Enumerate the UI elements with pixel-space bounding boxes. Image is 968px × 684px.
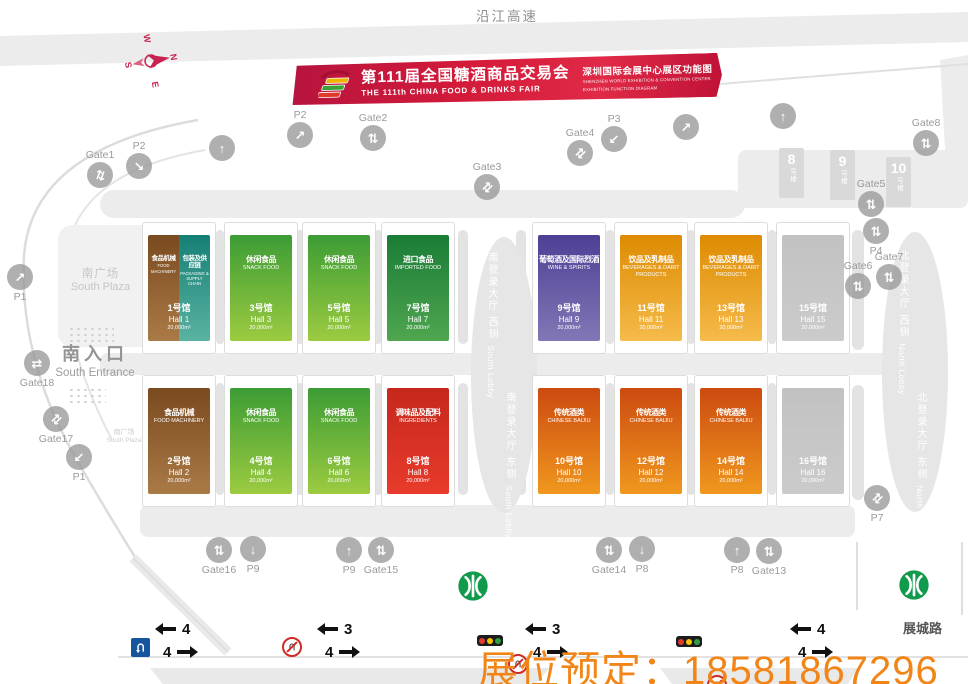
marker-label: Gate8 [912, 117, 941, 129]
left-arrow-icon [325, 627, 338, 631]
lane-count-segment: 3 4 [322, 621, 386, 660]
building-suffix: 号楼 [838, 170, 848, 185]
lane-count: 4 [817, 621, 825, 638]
lane-count: 4 [325, 644, 333, 661]
hall-number-cn: 12号馆 [620, 454, 682, 467]
hall-id: 3号馆 Hall 3 20,000m² [230, 301, 292, 331]
hall-frame: 16号馆 Hall 16 20,000m² [776, 375, 850, 507]
hall-area: 20,000m² [148, 478, 210, 484]
marker-label: P2 [294, 109, 307, 121]
south-lobby-east-en: South Lobby [504, 485, 514, 538]
hall-id: 9号馆 Hall 9 20,000m² [538, 301, 600, 331]
hall-block[interactable]: 葡萄酒及国际烈酒 WINE & SPIRITS 9号馆 Hall 9 20,00… [538, 235, 600, 341]
building-number: 10 [891, 161, 907, 175]
hall-number-cn: 6号馆 [308, 454, 370, 467]
gate-marker: P9 ↑ [336, 537, 362, 563]
direction-circle-icon: ↑ [724, 537, 750, 563]
hall-category-en: BEVERAGES & DAIRT PRODUCTS [701, 265, 761, 279]
hall-frame: 休闲食品 SNACK FOOD 4号馆 Hall 4 20,000m² [224, 375, 298, 507]
direction-circle-icon: ⇅ [368, 537, 394, 563]
lane-left: 4 [160, 621, 224, 637]
direction-circle-icon: ⇅ [206, 537, 232, 563]
lane-count: 3 [552, 621, 560, 638]
hall-category-primary: 食品机械 FOOD MACHINERY [148, 408, 210, 446]
marker-label: P7 [871, 512, 884, 524]
direction-arrow-icon: ⇅ [921, 137, 932, 150]
hall-category-primary: 调味品及配料 INGREDIENTS [387, 408, 449, 446]
uturn-allowed-sign-icon [131, 638, 150, 657]
direction-arrow-icon: ↑ [734, 544, 741, 557]
hall-category-secondary: 包装及供应链 PACKAGING & SUPPLY CHAIN [179, 255, 210, 293]
hall-id: 7号馆 Hall 7 20,000m² [387, 301, 449, 331]
direction-arrow-icon: ↓ [639, 543, 646, 556]
direction-arrow-icon: ⇅ [93, 167, 108, 183]
left-arrow-icon [163, 627, 176, 631]
hall-number-cn: 1号馆 [148, 301, 210, 314]
hall-block[interactable]: 休闲食品 SNACK FOOD 4号馆 Hall 4 20,000m² [230, 388, 292, 494]
direction-arrow-icon: ↑ [219, 142, 226, 155]
hall-id: 6号馆 Hall 6 20,000m² [308, 454, 370, 484]
hall-id: 11号馆 Hall 11 20,000m² [620, 301, 682, 331]
gate-marker: Gate6 ⇅ [845, 273, 871, 299]
hall-category: 传统酒类 CHINESE BAIJIU [538, 388, 600, 446]
gate-marker: ↗ [673, 114, 699, 140]
crosswalk [68, 387, 106, 407]
left-arrow-icon [533, 627, 546, 631]
hall-block[interactable]: 休闲食品 SNACK FOOD 6号馆 Hall 6 20,000m² [308, 388, 370, 494]
building-suffix: 号楼 [894, 177, 904, 192]
direction-arrow-icon: ⇅ [376, 544, 387, 557]
gate-marker: P9 ↓ [240, 536, 266, 562]
hall-category-primary: 传统酒类 CHINESE BAIJIU [620, 408, 682, 446]
hall-area: 20,000m² [538, 325, 600, 331]
north-lobby-east-cn: 北登录大厅 东侧 [913, 392, 926, 481]
hall-area: 20,000m² [230, 478, 292, 484]
hall-category: 休闲食品 SNACK FOOD [308, 388, 370, 446]
hall-block[interactable]: 传统酒类 CHINESE BAIJIU 12号馆 Hall 12 20,000m… [620, 388, 682, 494]
hall-category-en: SNACK FOOD [231, 265, 291, 272]
hall-block[interactable]: 饮品及乳制品 BEVERAGES & DAIRT PRODUCTS 13号馆 H… [700, 235, 762, 341]
hall-frame: 传统酒类 CHINESE BAIJIU 12号馆 Hall 12 20,000m… [614, 375, 688, 507]
hall-category-en: IMPORTED FOOD [388, 265, 448, 272]
hall-category-primary: 休闲食品 SNACK FOOD [230, 255, 292, 293]
hall-category: 传统酒类 CHINESE BAIJIU [620, 388, 682, 446]
hall-frame: 食品机械 FOOD MACHINERY 包装及供应链 PACKAGING & S… [142, 222, 216, 354]
hall-number-cn: 13号馆 [700, 301, 762, 314]
hall-category: 食品机械 FOOD MACHINERY 包装及供应链 PACKAGING & S… [148, 235, 210, 293]
south-plaza-label: 南广场 South Plaza [53, 265, 148, 293]
hall-category-cn: 休闲食品 [309, 408, 369, 417]
hall-frame: 休闲食品 SNACK FOOD 6号馆 Hall 6 20,000m² [302, 375, 376, 507]
direction-arrow-icon: ⇅ [866, 198, 877, 211]
hall-block[interactable]: 休闲食品 SNACK FOOD 5号馆 Hall 5 20,000m² [308, 235, 370, 341]
hall-frame: 进口食品 IMPORTED FOOD 7号馆 Hall 7 20,000m² [381, 222, 455, 354]
hall-number-en: Hall 11 [620, 315, 682, 324]
south-entrance-label: 南入口 South Entrance [36, 340, 154, 379]
hall-category-en: SNACK FOOD [309, 265, 369, 272]
hall-category-cn: 进口食品 [388, 255, 448, 264]
booking-hotline[interactable]: 展位预定：18581867296 [478, 638, 939, 684]
gate-marker: P1 ↗ [7, 264, 33, 290]
direction-circle-icon: ⇅ [756, 538, 782, 564]
direction-arrow-icon: ↙ [609, 133, 620, 146]
metro-station-icon [457, 570, 489, 602]
marker-label: Gate2 [359, 112, 388, 124]
hall-number-cn: 8号馆 [387, 454, 449, 467]
right-arrow-icon [339, 650, 352, 654]
gate-marker: Gate2 ⇅ [360, 125, 386, 151]
hall-number-cn: 16号馆 [782, 454, 844, 467]
gate-marker: Gate1 ⇅ [87, 162, 113, 188]
direction-circle-icon: ⇅ [858, 191, 884, 217]
hall-number-cn: 11号馆 [620, 301, 682, 314]
south-lobby-west-en: South Lobby [486, 345, 496, 398]
marker-label: Gate3 [473, 161, 502, 173]
direction-circle-icon: ⇅ [864, 485, 890, 511]
hall-number-cn: 14号馆 [700, 454, 762, 467]
hall-area: 20,000m² [620, 478, 682, 484]
hall-block[interactable]: 16号馆 Hall 16 20,000m² [782, 388, 844, 494]
hall-category: 休闲食品 SNACK FOOD [230, 235, 292, 293]
hall-category-primary: 传统酒类 CHINESE BAIJIU [538, 408, 600, 446]
hall-area: 20,000m² [230, 325, 292, 331]
hall-frame: 食品机械 FOOD MACHINERY 2号馆 Hall 2 20,000m² [142, 375, 216, 507]
hall-number-cn: 4号馆 [230, 454, 292, 467]
marker-label: Gate6 [844, 260, 873, 272]
direction-circle-icon: ⇅ [863, 218, 889, 244]
lane-left: 3 [530, 621, 594, 637]
direction-circle-icon: ↗ [287, 122, 313, 148]
hall-id: 10号馆 Hall 10 20,000m² [538, 454, 600, 484]
hall-area: 20,000m² [700, 325, 762, 331]
hall-category-primary: 饮品及乳制品 BEVERAGES & DAIRT PRODUCTS [700, 255, 762, 293]
numbered-building: 8 号楼 [779, 148, 804, 198]
hall-frame: 饮品及乳制品 BEVERAGES & DAIRT PRODUCTS 11号馆 H… [614, 222, 688, 354]
direction-circle-icon: ⇄ [24, 350, 50, 376]
hall-area: 20,000m² [308, 325, 370, 331]
direction-circle-icon: ↓ [629, 536, 655, 562]
north-lobby-east-en: North Lobby [915, 485, 925, 537]
hall-number-en: Hall 3 [230, 315, 292, 324]
marker-label: Gate5 [857, 178, 886, 190]
marker-label: Gate18 [20, 377, 54, 389]
hall-category-primary: 休闲食品 SNACK FOOD [230, 408, 292, 446]
marker-label: Gate15 [364, 564, 398, 576]
gate-marker: ↑ [209, 135, 235, 161]
direction-circle-icon: ⇅ [474, 174, 500, 200]
direction-arrow-icon: ⇅ [214, 544, 225, 557]
hall-category-cn: 葡萄酒及国际烈酒 [539, 255, 599, 264]
hall-category-cn: 传统酒类 [621, 408, 681, 417]
building-number: 8 [788, 152, 796, 166]
lane-right: 4 [322, 644, 386, 660]
direction-circle-icon: ⇅ [876, 264, 902, 290]
direction-arrow-icon: ↗ [681, 121, 692, 134]
road-label-zhancheng: 展城路 [903, 618, 942, 637]
hall-frame: 调味品及配料 INGREDIENTS 8号馆 Hall 8 20,000m² [381, 375, 455, 507]
marker-label: Gate4 [566, 127, 595, 139]
marker-label: Gate7 [875, 251, 904, 263]
hall-category-en: FOOD MACHINERY [149, 263, 178, 274]
hall-category-en: CHINESE BAIJIU [539, 418, 599, 425]
hall-id: 14号馆 Hall 14 20,000m² [700, 454, 762, 484]
direction-circle-icon: ↑ [336, 537, 362, 563]
direction-circle-icon: ↗ [7, 264, 33, 290]
hall-number-en: Hall 16 [782, 468, 844, 477]
hall-id: 1号馆 Hall 1 20,000m² [148, 301, 210, 331]
hall-category-primary [782, 408, 844, 446]
north-lobby-west-en: North Lobby [897, 343, 907, 395]
gate-marker: Gate8 ⇅ [913, 130, 939, 156]
hall-area: 20,000m² [387, 325, 449, 331]
lane-count: 3 [344, 621, 352, 638]
hall-number-en: Hall 2 [148, 468, 210, 477]
compass-rose: N E S W [124, 34, 177, 87]
left-arrow-icon [798, 627, 811, 631]
hall-number-en: Hall 9 [538, 315, 600, 324]
hall-category-cn: 饮品及乳制品 [701, 255, 761, 264]
direction-arrow-icon: ↙ [74, 451, 85, 464]
marker-label: Gate13 [752, 565, 786, 577]
direction-arrow-icon: ⇅ [572, 145, 589, 162]
gate-marker: Gate3 ⇅ [474, 174, 500, 200]
hall-category-primary [782, 255, 844, 293]
gate-marker: P1 ↙ [66, 444, 92, 470]
hall-category: 传统酒类 CHINESE BAIJIU [700, 388, 762, 446]
hall-area: 20,000m² [782, 325, 844, 331]
hall-category-cn: 食品机械 [149, 255, 178, 262]
metro-station-icon [898, 569, 930, 601]
hall-category-en: SNACK FOOD [309, 418, 369, 425]
hall-category-en: SNACK FOOD [231, 418, 291, 425]
hall-category-primary: 进口食品 IMPORTED FOOD [387, 255, 449, 293]
south-entrance-cn: 南入口 [36, 340, 154, 366]
lane-left: 3 [322, 621, 386, 637]
lane-count-segment: 4 4 [160, 621, 224, 660]
lane-count: 4 [163, 644, 171, 661]
expressway-label: 沿江高速 [437, 5, 577, 25]
direction-arrow-icon: ⇅ [871, 225, 882, 238]
banner-venue-block: 深圳国际会展中心展区功能图 SHENZHEN WORLD EXHIBITION … [582, 61, 713, 93]
direction-circle-icon: ↙ [601, 126, 627, 152]
hall-id: 13号馆 Hall 13 20,000m² [700, 301, 762, 331]
hall-category: 饮品及乳制品 BEVERAGES & DAIRT PRODUCTS [700, 235, 762, 293]
hall-block[interactable]: 15号馆 Hall 15 20,000m² [782, 235, 844, 341]
hall-frame: 休闲食品 SNACK FOOD 5号馆 Hall 5 20,000m² [302, 222, 376, 354]
hall-category-primary: 食品机械 FOOD MACHINERY [148, 255, 179, 293]
exhibition-map: 沿江高速 展城路 第111届全国糖酒商品交易会 THE 111th CHINA … [0, 0, 968, 684]
hall-block[interactable]: 休闲食品 SNACK FOOD 3号馆 Hall 3 20,000m² [230, 235, 292, 341]
hall-block[interactable]: 调味品及配料 INGREDIENTS 8号馆 Hall 8 20,000m² [387, 388, 449, 494]
hall-category: 食品机械 FOOD MACHINERY [148, 388, 210, 446]
direction-arrow-icon: ⇅ [48, 411, 65, 428]
hall-id: 5号馆 Hall 5 20,000m² [308, 301, 370, 331]
lane-count: 4 [182, 621, 190, 638]
hall-frame: 葡萄酒及国际烈酒 WINE & SPIRITS 9号馆 Hall 9 20,00… [532, 222, 606, 354]
hall-frame: 传统酒类 CHINESE BAIJIU 14号馆 Hall 14 20,000m… [694, 375, 768, 507]
direction-circle-icon: ↘ [126, 153, 152, 179]
banner-venue-cn: 深圳国际会展中心展区功能图 [582, 61, 712, 78]
hall-block[interactable]: 食品机械 FOOD MACHINERY 2号馆 Hall 2 20,000m² [148, 388, 210, 494]
hall-number-en: Hall 15 [782, 315, 844, 324]
hall-id: 15号馆 Hall 15 20,000m² [782, 301, 844, 331]
hall-number-en: Hall 7 [387, 315, 449, 324]
hall-category-cn: 休闲食品 [231, 255, 291, 264]
direction-arrow-icon: ⇅ [764, 545, 775, 558]
lane-left: 4 [795, 621, 859, 637]
gate-marker: P2 ↘ [126, 153, 152, 179]
hall-category-cn: 传统酒类 [701, 408, 761, 417]
hall-id: 2号馆 Hall 2 20,000m² [148, 454, 210, 484]
hall-number-en: Hall 8 [387, 468, 449, 477]
direction-circle-icon: ⇅ [567, 140, 593, 166]
hall-category: 进口食品 IMPORTED FOOD [387, 235, 449, 293]
hall-category-en: WINE & SPIRITS [539, 265, 599, 272]
banner-venue-en2: EXHIBITION FUNCTION DIAGRAM [583, 83, 713, 92]
hall-number-cn: 7号馆 [387, 301, 449, 314]
hall-block[interactable]: 进口食品 IMPORTED FOOD 7号馆 Hall 7 20,000m² [387, 235, 449, 341]
compass-w: W [141, 34, 152, 44]
direction-arrow-icon: ↗ [15, 271, 26, 284]
gate-marker: P8 ↓ [629, 536, 655, 562]
hall-category-primary: 饮品及乳制品 BEVERAGES & DAIRT PRODUCTS [620, 255, 682, 293]
direction-circle-icon: ↙ [66, 444, 92, 470]
direction-circle-icon: ⇅ [360, 125, 386, 151]
hall-block[interactable]: 食品机械 FOOD MACHINERY 包装及供应链 PACKAGING & S… [148, 235, 210, 341]
direction-arrow-icon: ↑ [346, 544, 353, 557]
direction-circle-icon: ↑ [770, 103, 796, 129]
marker-label: Gate1 [86, 149, 115, 161]
hall-category-en: FOOD MACHINERY [149, 418, 209, 425]
hall-frame: 休闲食品 SNACK FOOD 3号馆 Hall 3 20,000m² [224, 222, 298, 354]
numbered-building: 10 号楼 [886, 157, 911, 207]
hall-number-cn: 15号馆 [782, 301, 844, 314]
hall-number-cn: 2号馆 [148, 454, 210, 467]
gate-marker: Gate17 ⇅ [43, 406, 69, 432]
hall-category-en: CHINESE BAIJIU [701, 418, 761, 425]
hall-area: 20,000m² [308, 478, 370, 484]
hall-category [782, 388, 844, 446]
hall-block[interactable]: 传统酒类 CHINESE BAIJIU 10号馆 Hall 10 20,000m… [538, 388, 600, 494]
gate-marker: P3 ↙ [601, 126, 627, 152]
hall-category [782, 235, 844, 293]
hall-area: 20,000m² [387, 478, 449, 484]
marker-label: Gate14 [592, 564, 626, 576]
hall-id: 4号馆 Hall 4 20,000m² [230, 454, 292, 484]
gate-marker: Gate7 ⇅ [876, 264, 902, 290]
hall-area: 20,000m² [538, 478, 600, 484]
hall-id: 16号馆 Hall 16 20,000m² [782, 454, 844, 484]
hall-area: 20,000m² [782, 478, 844, 484]
marker-label: P1 [73, 471, 86, 483]
direction-circle-icon: ⇅ [913, 130, 939, 156]
hall-number-en: Hall 10 [538, 468, 600, 477]
hall-number-en: Hall 4 [230, 468, 292, 477]
direction-arrow-icon: ⇅ [884, 271, 895, 284]
hall-id: 8号馆 Hall 8 20,000m² [387, 454, 449, 484]
no-uturn-sign-icon [282, 637, 302, 657]
marker-label: P8 [636, 563, 649, 575]
hall-category-cn: 休闲食品 [231, 408, 291, 417]
hall-category2-en: PACKAGING & SUPPLY CHAIN [180, 271, 209, 287]
marker-label: P9 [343, 564, 356, 576]
direction-arrow-icon: ⇄ [32, 357, 43, 370]
gate-marker: Gate13 ⇅ [756, 538, 782, 564]
direction-arrow-icon: ⇅ [604, 544, 615, 557]
gate-marker: Gate14 ⇅ [596, 537, 622, 563]
hall-number-en: Hall 14 [700, 468, 762, 477]
hall-category-cn: 调味品及配料 [388, 408, 448, 417]
south-plaza-cn: 南广场 [53, 265, 148, 281]
hall-block[interactable]: 传统酒类 CHINESE BAIJIU 14号馆 Hall 14 20,000m… [700, 388, 762, 494]
direction-arrow-icon: ⇅ [479, 179, 496, 196]
direction-circle-icon: ⇅ [596, 537, 622, 563]
hall-number-en: Hall 1 [148, 315, 210, 324]
marker-label: P3 [608, 113, 621, 125]
direction-arrow-icon: ↘ [134, 160, 145, 173]
hall-number-en: Hall 5 [308, 315, 370, 324]
hall-number-en: Hall 12 [620, 468, 682, 477]
hall-category-en: BEVERAGES & DAIRT PRODUCTS [621, 265, 681, 279]
hall-area: 20,000m² [620, 325, 682, 331]
direction-circle-icon: ⇅ [87, 162, 113, 188]
hall-id: 12号馆 Hall 12 20,000m² [620, 454, 682, 484]
gate-marker: Gate5 ⇅ [858, 191, 884, 217]
direction-circle-icon: ⇅ [845, 273, 871, 299]
south-lobby-east-label: 南登录大厅 东侧 South Lobby [500, 392, 518, 538]
direction-arrow-icon: ↗ [295, 129, 306, 142]
gate-marker: P4 ⇅ [863, 218, 889, 244]
hall-category-cn: 传统酒类 [539, 408, 599, 417]
gate-marker: P7 ⇅ [864, 485, 890, 511]
direction-arrow-icon: ⇅ [869, 490, 886, 507]
hall-category: 饮品及乳制品 BEVERAGES & DAIRT PRODUCTS [620, 235, 682, 293]
gate-marker: Gate18 ⇄ [24, 350, 50, 376]
direction-circle-icon: ⇅ [43, 406, 69, 432]
gate-marker: Gate4 ⇅ [567, 140, 593, 166]
hall-frame: 15号馆 Hall 15 20,000m² [776, 222, 850, 354]
hall-category-primary: 休闲食品 SNACK FOOD [308, 255, 370, 293]
gate-marker: P2 ↗ [287, 122, 313, 148]
right-arrow-icon [177, 650, 190, 654]
hall-area: 20,000m² [700, 478, 762, 484]
direction-circle-icon: ↑ [209, 135, 235, 161]
south-lobby-east-cn: 南登录大厅 东侧 [502, 392, 515, 481]
building-suffix: 号楼 [787, 168, 797, 183]
south-lobby-west-label: 南登录大厅 西侧 South Lobby [482, 252, 500, 398]
hall-category: 调味品及配料 INGREDIENTS [387, 388, 449, 446]
north-lobby-east-label: 北登录大厅 东侧 North Lobby [911, 392, 929, 537]
hall-category-primary: 葡萄酒及国际烈酒 WINE & SPIRITS [538, 255, 600, 293]
south-lobby-west-cn: 南登录大厅 西侧 [484, 252, 497, 341]
fair-logo-icon [318, 69, 353, 100]
marker-label: P9 [247, 563, 260, 575]
hall-category: 葡萄酒及国际烈酒 WINE & SPIRITS [538, 235, 600, 293]
hall-frame: 传统酒类 CHINESE BAIJIU 10号馆 Hall 10 20,000m… [532, 375, 606, 507]
hall-block[interactable]: 饮品及乳制品 BEVERAGES & DAIRT PRODUCTS 11号馆 H… [620, 235, 682, 341]
gate-marker: Gate15 ⇅ [368, 537, 394, 563]
gate-marker: P8 ↑ [724, 537, 750, 563]
hall-category-en: CHINESE BAIJIU [621, 418, 681, 425]
gate-marker: Gate16 ⇅ [206, 537, 232, 563]
hall-category-primary: 休闲食品 SNACK FOOD [308, 408, 370, 446]
hall-category: 休闲食品 SNACK FOOD [230, 388, 292, 446]
hall-category-cn: 休闲食品 [309, 255, 369, 264]
marker-label: Gate16 [202, 564, 236, 576]
hall-frame: 饮品及乳制品 BEVERAGES & DAIRT PRODUCTS 13号馆 H… [694, 222, 768, 354]
hall-number-en: Hall 13 [700, 315, 762, 324]
hall-category-primary: 传统酒类 CHINESE BAIJIU [700, 408, 762, 446]
